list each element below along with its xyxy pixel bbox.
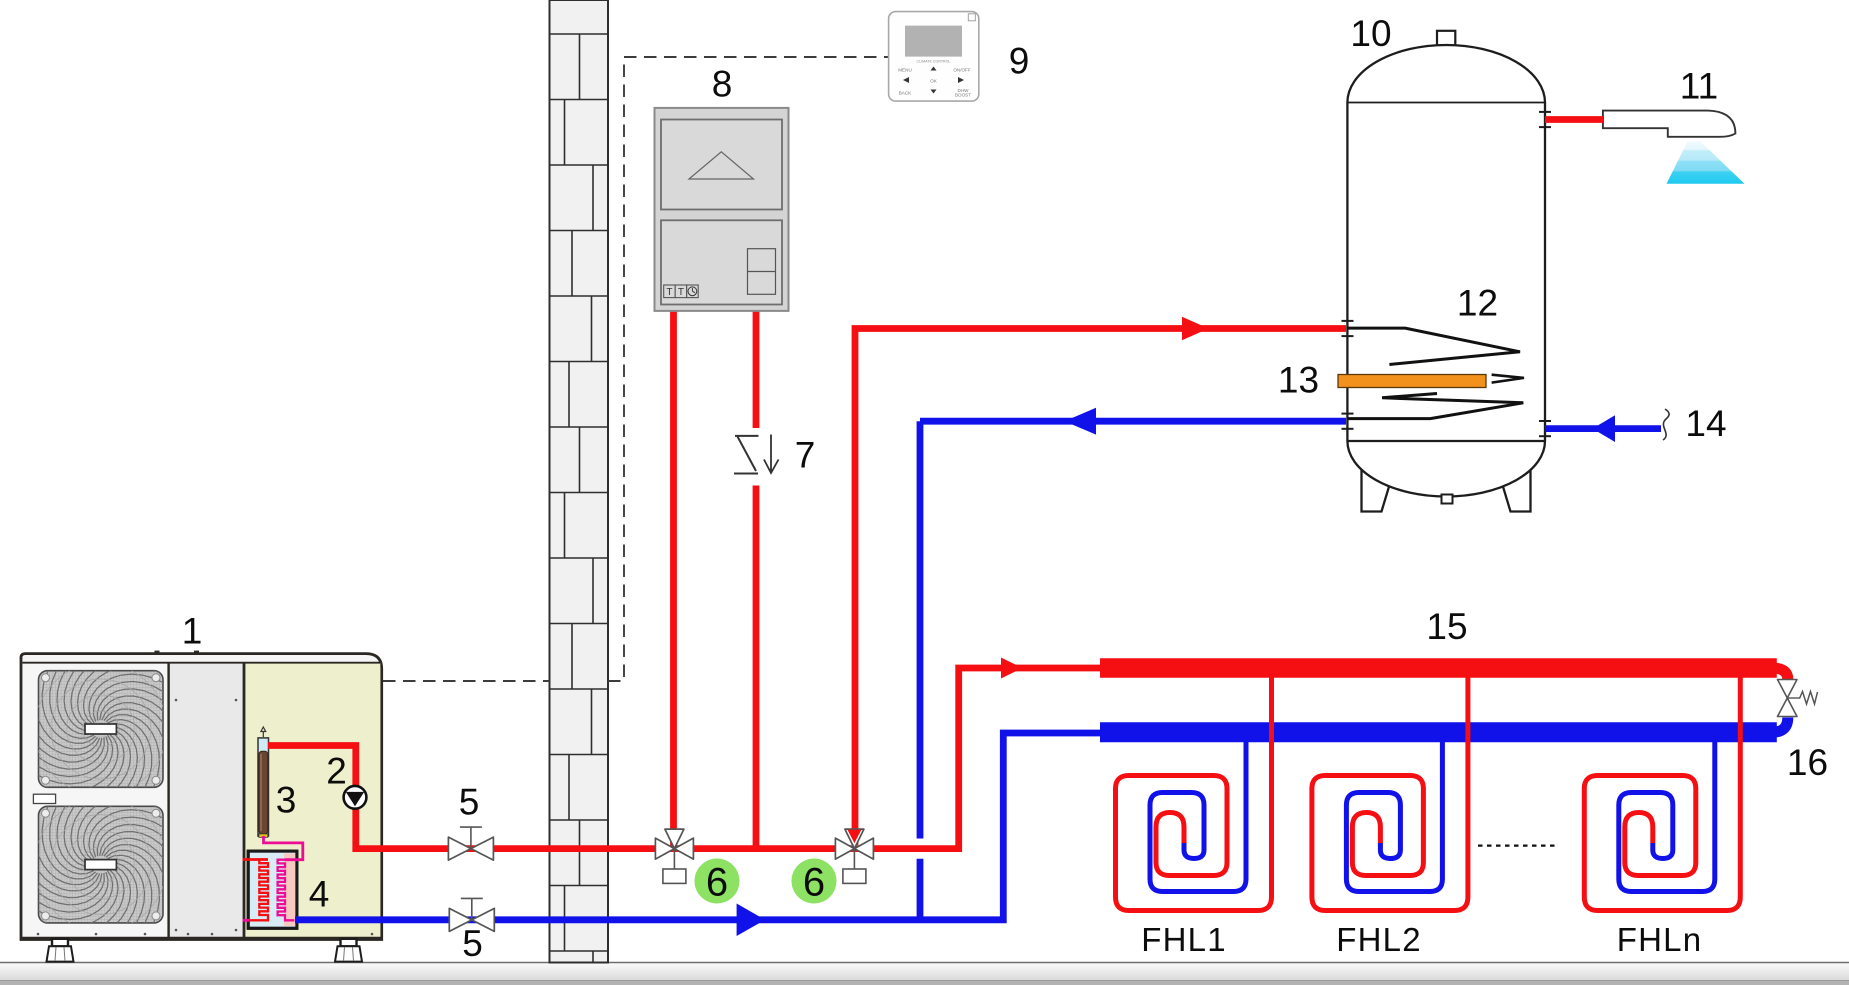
svg-text:14: 14: [1685, 403, 1726, 444]
svg-text:CLIMATE CONTROL: CLIMATE CONTROL: [917, 60, 951, 64]
svg-text:16: 16: [1787, 742, 1828, 783]
svg-text:BOOST: BOOST: [955, 93, 971, 98]
svg-text:2: 2: [326, 751, 347, 792]
svg-text:T: T: [678, 287, 684, 298]
svg-text:FHL2: FHL2: [1336, 921, 1422, 958]
svg-text:6: 6: [706, 861, 728, 905]
svg-text:OK: OK: [930, 79, 938, 84]
svg-text:5: 5: [462, 923, 483, 964]
svg-text:FHLn: FHLn: [1617, 921, 1703, 958]
svg-text:10: 10: [1350, 13, 1391, 54]
svg-text:13: 13: [1278, 360, 1319, 401]
svg-text:9: 9: [1009, 41, 1030, 82]
svg-text:5: 5: [459, 782, 480, 823]
svg-text:4: 4: [309, 874, 330, 915]
svg-text:8: 8: [712, 64, 733, 105]
svg-text:11: 11: [1680, 66, 1718, 107]
svg-text:12: 12: [1457, 283, 1498, 324]
svg-text:T: T: [666, 287, 672, 298]
svg-text:FHL1: FHL1: [1141, 921, 1227, 958]
svg-text:MENU: MENU: [898, 68, 912, 73]
svg-text:ON/OFF: ON/OFF: [953, 68, 971, 73]
svg-text:1: 1: [182, 611, 203, 652]
svg-text:BACK: BACK: [899, 91, 912, 96]
svg-text:3: 3: [276, 780, 297, 821]
svg-text:7: 7: [795, 435, 816, 476]
svg-text:6: 6: [803, 861, 825, 905]
svg-text:15: 15: [1426, 606, 1467, 647]
